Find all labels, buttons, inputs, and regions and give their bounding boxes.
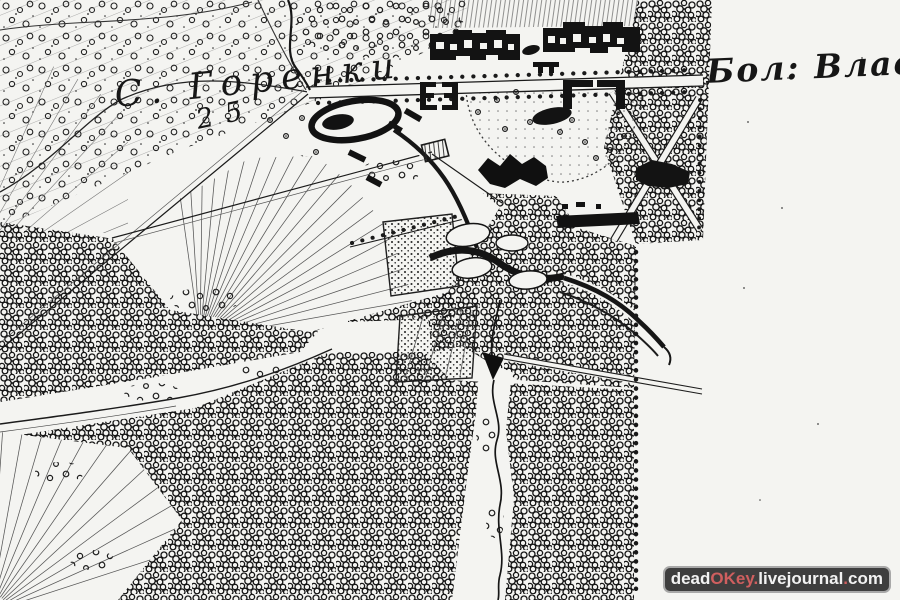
watermark-segment: com (848, 569, 883, 588)
watermark-segment: livejournal (758, 569, 843, 588)
watermark-livejournal: deadOKey.livejournal.com (663, 566, 891, 593)
watermark-segment: OKey (710, 569, 753, 588)
historical-map-screenshot: С. Горенки 25 Бол: Владим deadOKey.livej… (0, 0, 900, 600)
building-row-west (430, 30, 520, 60)
watermark-segment: dead (671, 569, 711, 588)
